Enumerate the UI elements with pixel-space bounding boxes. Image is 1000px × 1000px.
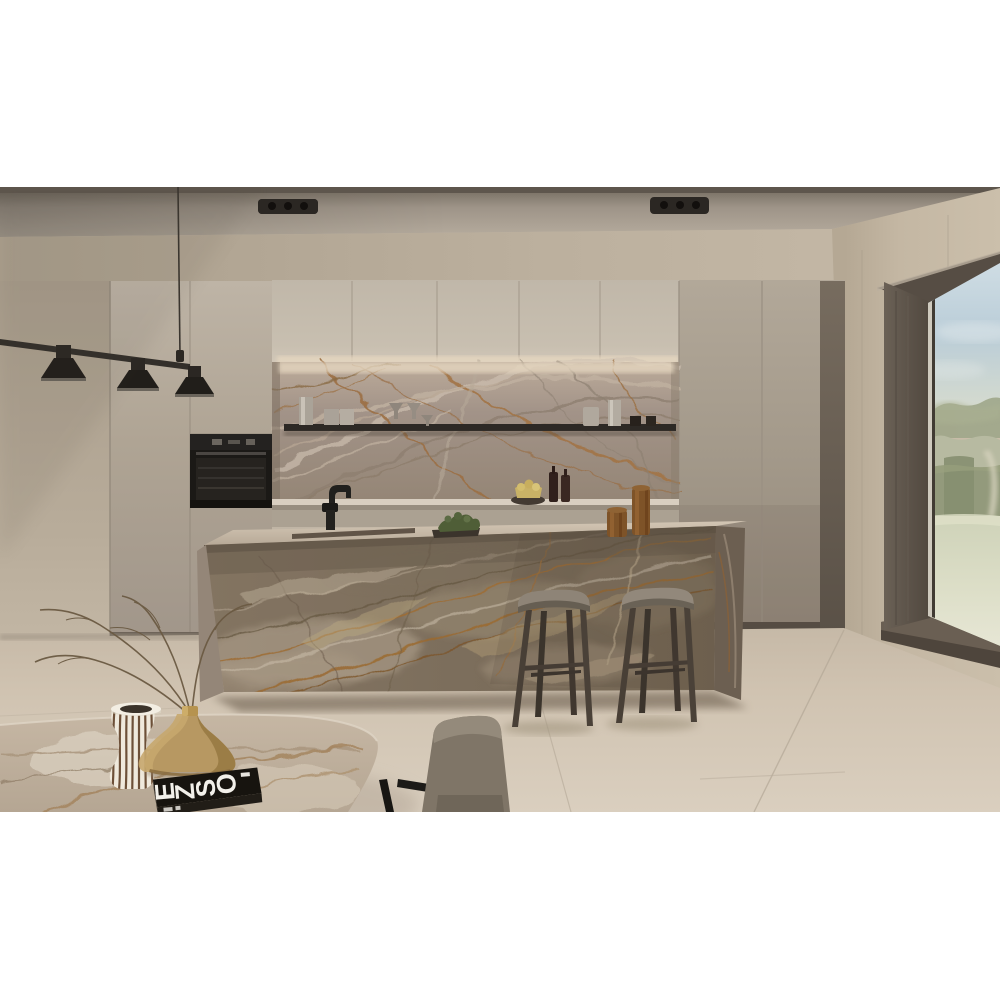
svg-text:O: O xyxy=(211,772,243,796)
